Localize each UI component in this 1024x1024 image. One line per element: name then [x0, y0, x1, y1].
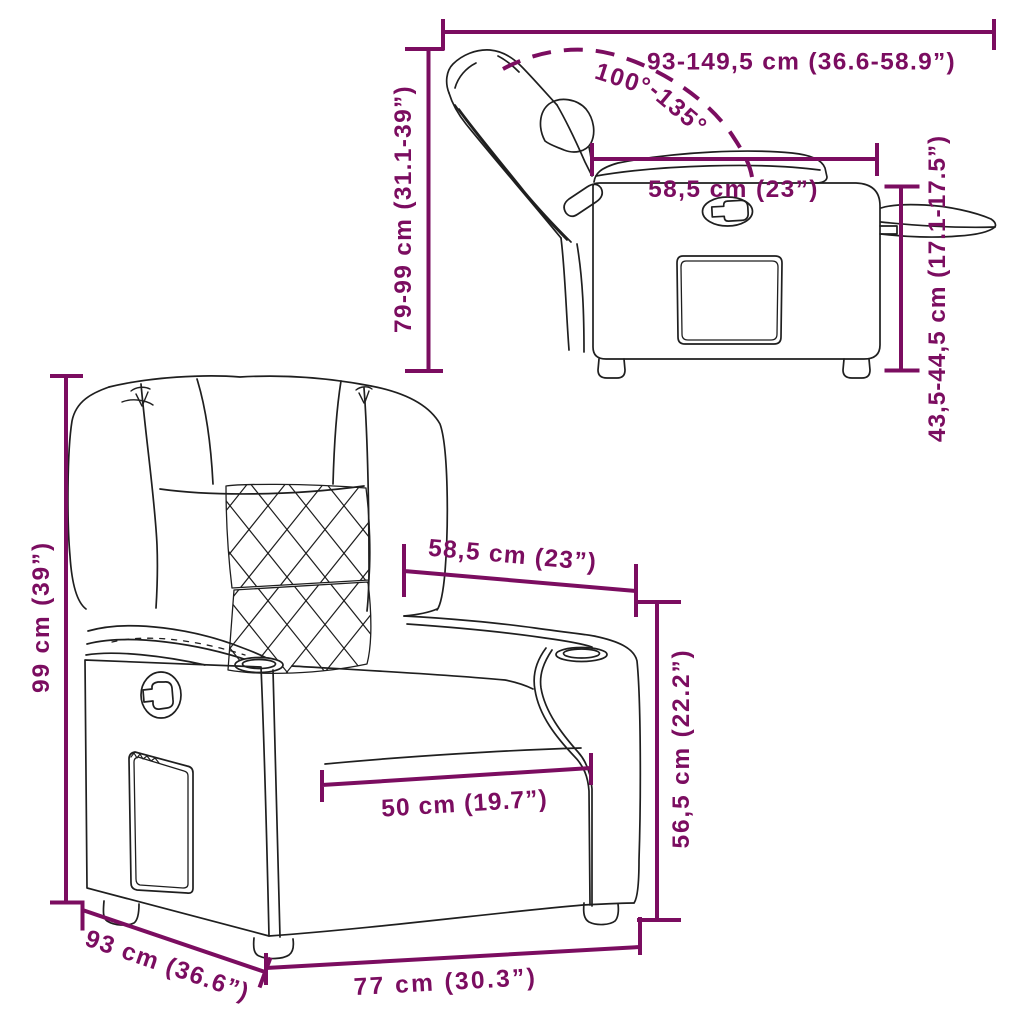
svg-text:43,5-44,5 cm (17.1-17.5”): 43,5-44,5 cm (17.1-17.5”) [924, 135, 951, 442]
svg-text:99 cm (39”): 99 cm (39”) [28, 541, 55, 693]
svg-text:58,5 cm (23”): 58,5 cm (23”) [648, 176, 819, 203]
svg-text:79-99 cm (31.1-39”): 79-99 cm (31.1-39”) [390, 85, 417, 333]
svg-text:56,5 cm (22.2”): 56,5 cm (22.2”) [668, 649, 695, 849]
svg-text:93-149,5 cm (36.6-58.9”): 93-149,5 cm (36.6-58.9”) [647, 49, 956, 76]
